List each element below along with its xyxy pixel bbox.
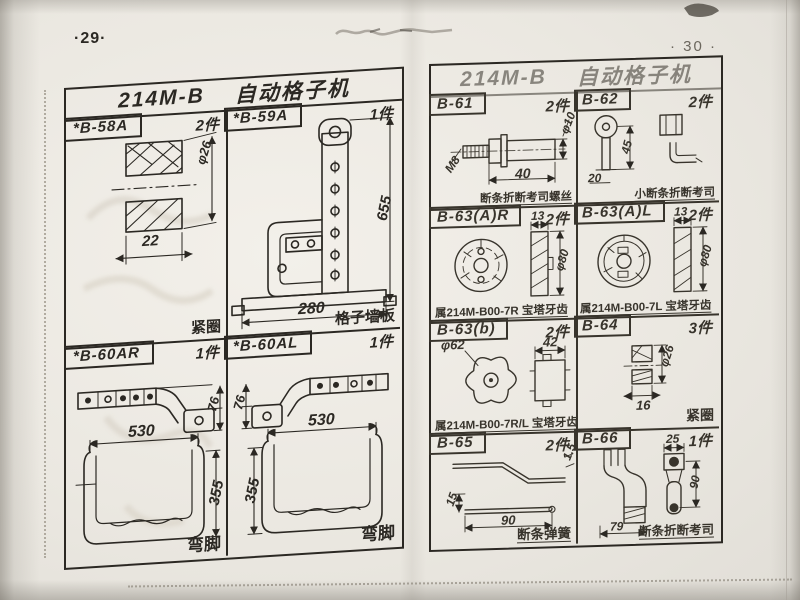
part-code: B-66 [582, 429, 619, 447]
part-caption: 断条折断考司 [639, 519, 714, 540]
part-code: *B-58A [73, 117, 128, 137]
dim-label: 20 [588, 171, 601, 185]
dim-label: 25 [666, 432, 679, 446]
part-code: B-62 [582, 90, 619, 108]
part-qty: 3件 [689, 317, 712, 339]
part-code-box: B-66 [574, 427, 631, 451]
part-caption: 紧圈 [686, 405, 714, 426]
part-code: B-63(A)L [582, 202, 653, 221]
part-code: B-61 [437, 95, 474, 113]
part-caption: 断条折断考司螺丝 [480, 188, 572, 207]
part-cell-b63ar: B-63(A)R 2件 1 [431, 205, 578, 324]
part-code: B-65 [437, 434, 474, 452]
left-fold-crease [44, 90, 46, 558]
part-code-box: B-65 [429, 431, 486, 455]
scanned-catalog-photo: ·29· · 30 · 214M-B 自动格子机 *B-58A 2件 [0, 0, 800, 600]
part-qty: 2件 [689, 204, 712, 226]
part-cell-b66: B-66 1件 [576, 426, 719, 543]
part-qty: 2件 [689, 91, 712, 113]
part-qty: 2件 [546, 434, 569, 456]
part-code-box: *B-59A [224, 103, 302, 132]
dim-label: 280 [298, 300, 325, 320]
page-number-30: · 30 · [670, 38, 717, 55]
dim-label: 22 [142, 232, 159, 250]
part-code: B-64 [582, 316, 619, 334]
part-caption: 弯脚 [361, 518, 395, 545]
part-code-box: B-62 [574, 88, 631, 112]
part-code-box: B-61 [429, 92, 486, 116]
part-code-box: *B-58A [64, 113, 142, 142]
model-code: 214M-B [460, 66, 547, 93]
part-cell-b59a: *B-59A 1件 [226, 99, 400, 340]
part-qty: 2件 [196, 113, 219, 135]
part-qty: 2件 [546, 321, 569, 343]
dim-label: 530 [308, 411, 335, 431]
part-qty: 1件 [370, 102, 393, 124]
part-cell-b62: B-62 2件 45 20 [576, 87, 719, 206]
part-cell-b63b: B-63(b) 2件 φ62 42 属214M-B00-7R/L 宝塔牙齿 [431, 318, 578, 437]
part-qty: 2件 [546, 95, 569, 117]
part-code-box: B-63(A)L [574, 200, 665, 225]
under-page-edge [128, 579, 792, 588]
part-code-box: B-63(A)R [429, 204, 521, 229]
part-code: B-63(b) [437, 320, 496, 339]
dim-label: 13 [674, 204, 687, 218]
part-code-box: B-63(b) [429, 318, 508, 342]
part-code: *B-60AR [73, 344, 140, 365]
part-caption: 弯脚 [187, 529, 221, 556]
dim-label: 40 [515, 165, 531, 181]
part-cell-b64: B-64 3件 φ26 16 紧圈 [576, 313, 719, 432]
dim-label: 90 [686, 474, 702, 490]
part-code-box: B-64 [574, 314, 631, 338]
part-cell-b60ar: *B-60AR 1件 [66, 338, 228, 566]
part-code: *B-60AL [233, 334, 298, 355]
part-cell-b63al: B-63(A)L 2件 13 φ80 属214 [576, 200, 719, 319]
page-29-table: 214M-B 自动格子机 *B-58A 2件 [64, 67, 404, 570]
part-cell-b61: B-61 2件 M8 φ10 [431, 92, 578, 211]
dim-label: 530 [128, 422, 155, 442]
page-30-table: 214M-B 自动格子机 B-61 2件 [429, 55, 723, 552]
dim-label: 79 [610, 519, 623, 533]
dim-label: 13 [531, 209, 544, 223]
corner-ink-smudge [678, 0, 724, 18]
part-cell-b65: B-65 2件 1.5 15 90 断条弹簧 [431, 431, 578, 548]
part-qty: 2件 [546, 208, 569, 230]
dim-label: 16 [636, 397, 650, 412]
part-qty: 1件 [196, 341, 219, 363]
pencil-scribble [330, 20, 460, 42]
part-qty: 1件 [370, 330, 393, 352]
part-code: *B-59A [233, 107, 288, 127]
part-caption: 紧圈 [191, 315, 221, 338]
part-caption: 格子墙板 [335, 304, 395, 329]
model-code: 214M-B [118, 84, 205, 113]
part-caption: 小断条折断考司 [635, 184, 716, 202]
dim-label: 90 [501, 512, 515, 527]
part-caption: 断条弹簧 [517, 522, 571, 544]
right-paper-edge [786, 0, 787, 600]
machine-name: 自动格子机 [577, 58, 692, 91]
part-code: B-63(A)R [437, 207, 509, 226]
part-cell-b60al: *B-60AL 1件 [226, 327, 400, 556]
part-cell-b58a: *B-58A 2件 φ26 22 紧圈 [66, 110, 228, 350]
page-number-29: ·29· [74, 30, 106, 48]
part-qty: 1件 [689, 430, 712, 452]
